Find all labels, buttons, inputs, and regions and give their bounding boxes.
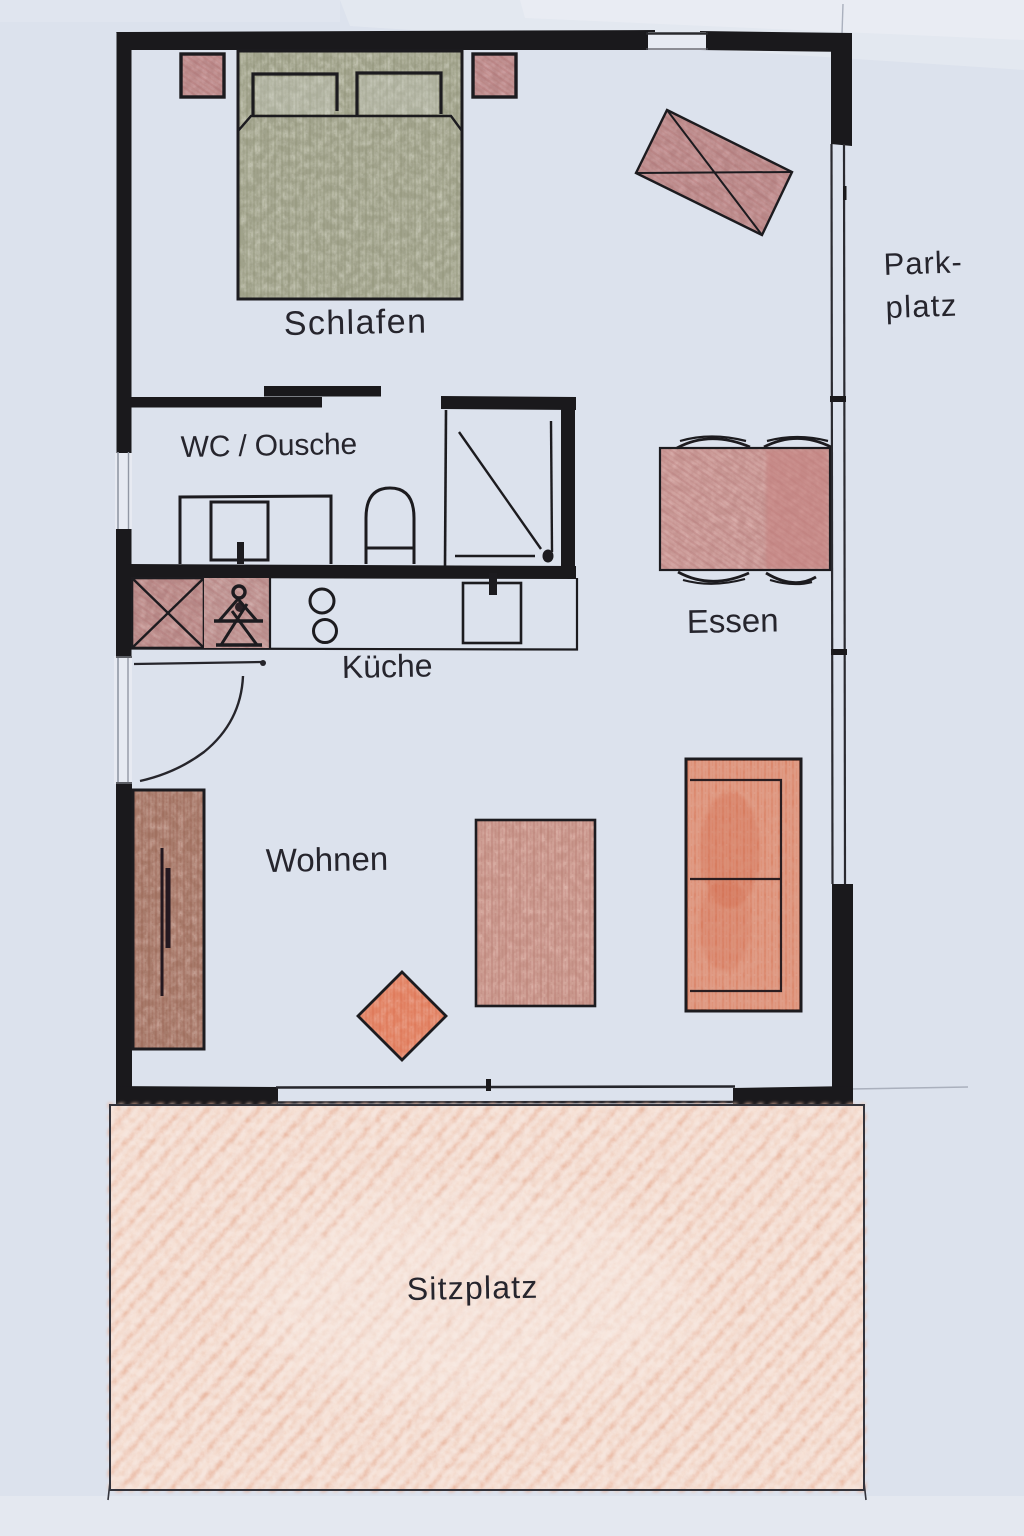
svg-text:Sitzplatz: Sitzplatz — [406, 1269, 538, 1307]
svg-text:platz: platz — [885, 288, 958, 325]
svg-text:Küche: Küche — [341, 647, 432, 685]
svg-text:Schlafen: Schlafen — [283, 302, 427, 342]
svg-text:WC / Ousche: WC / Ousche — [180, 428, 357, 464]
svg-text:Wohnen: Wohnen — [265, 840, 388, 879]
svg-text:Park-: Park- — [883, 244, 963, 282]
svg-text:Essen: Essen — [686, 601, 778, 640]
